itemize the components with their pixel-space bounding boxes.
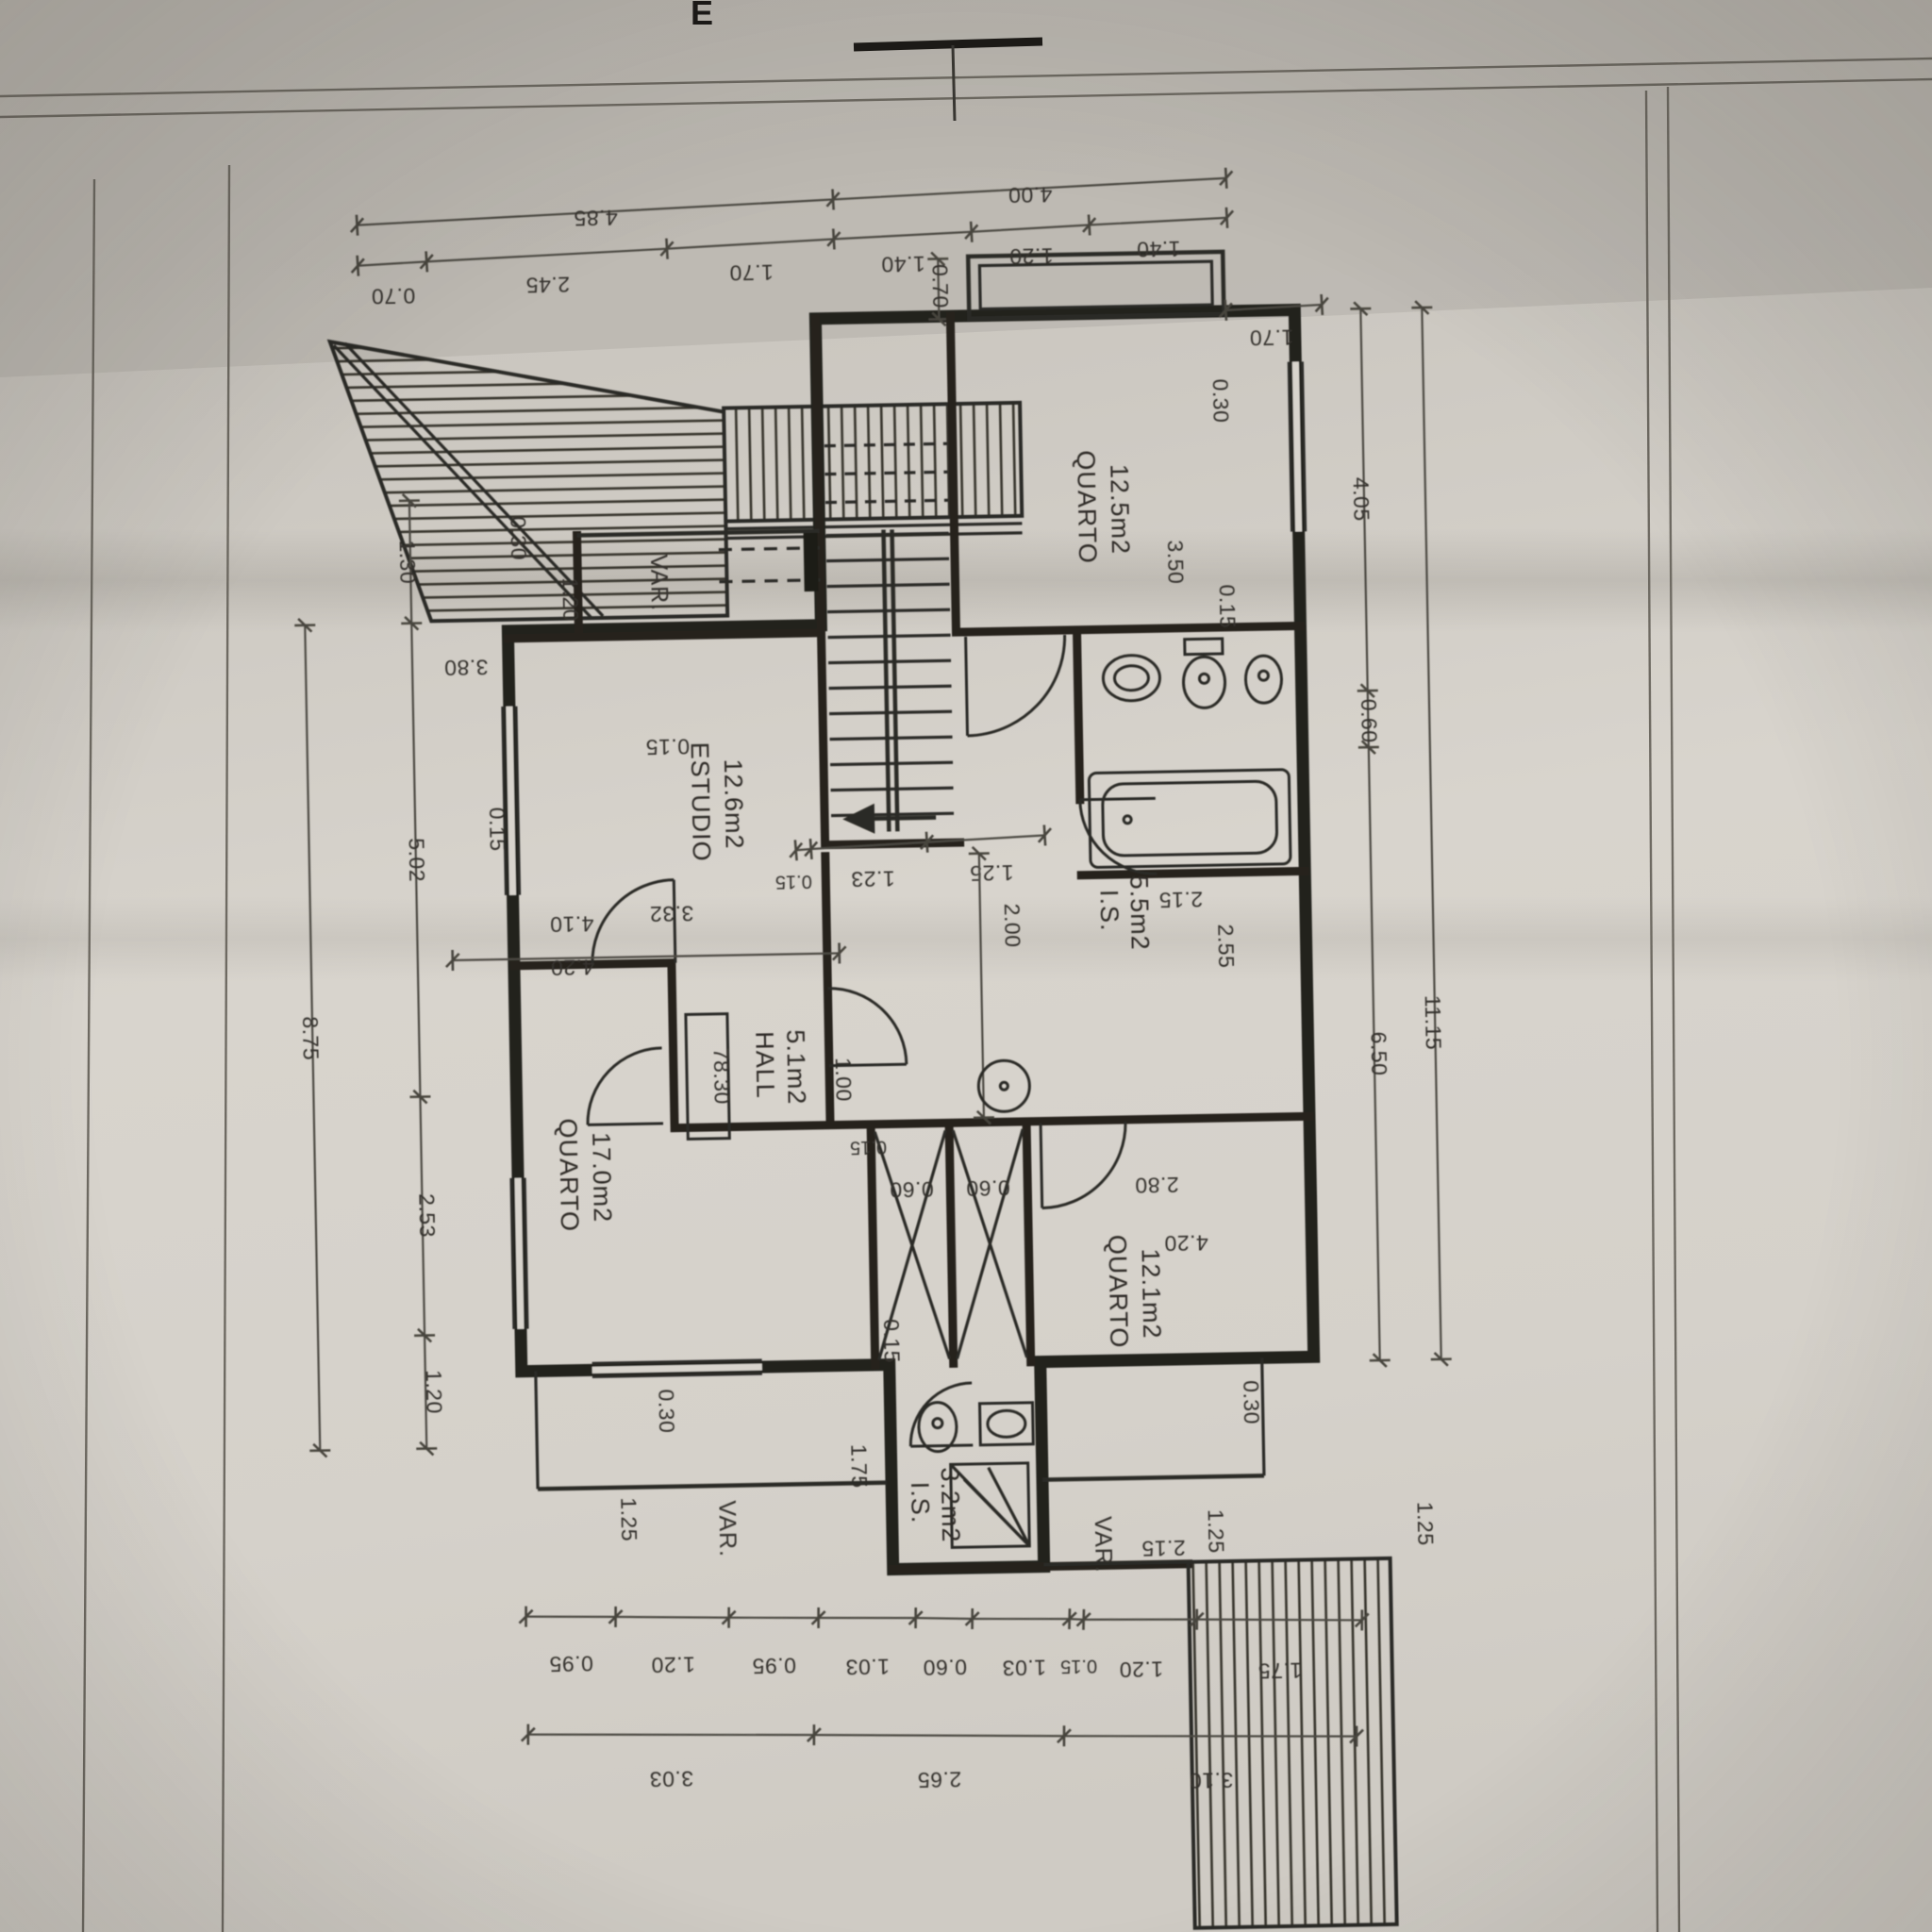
photo-vignette (0, 0, 1932, 1932)
floor-plan-drawing: E (0, 0, 1932, 1932)
floor-plan-photo: E (0, 0, 1932, 1932)
